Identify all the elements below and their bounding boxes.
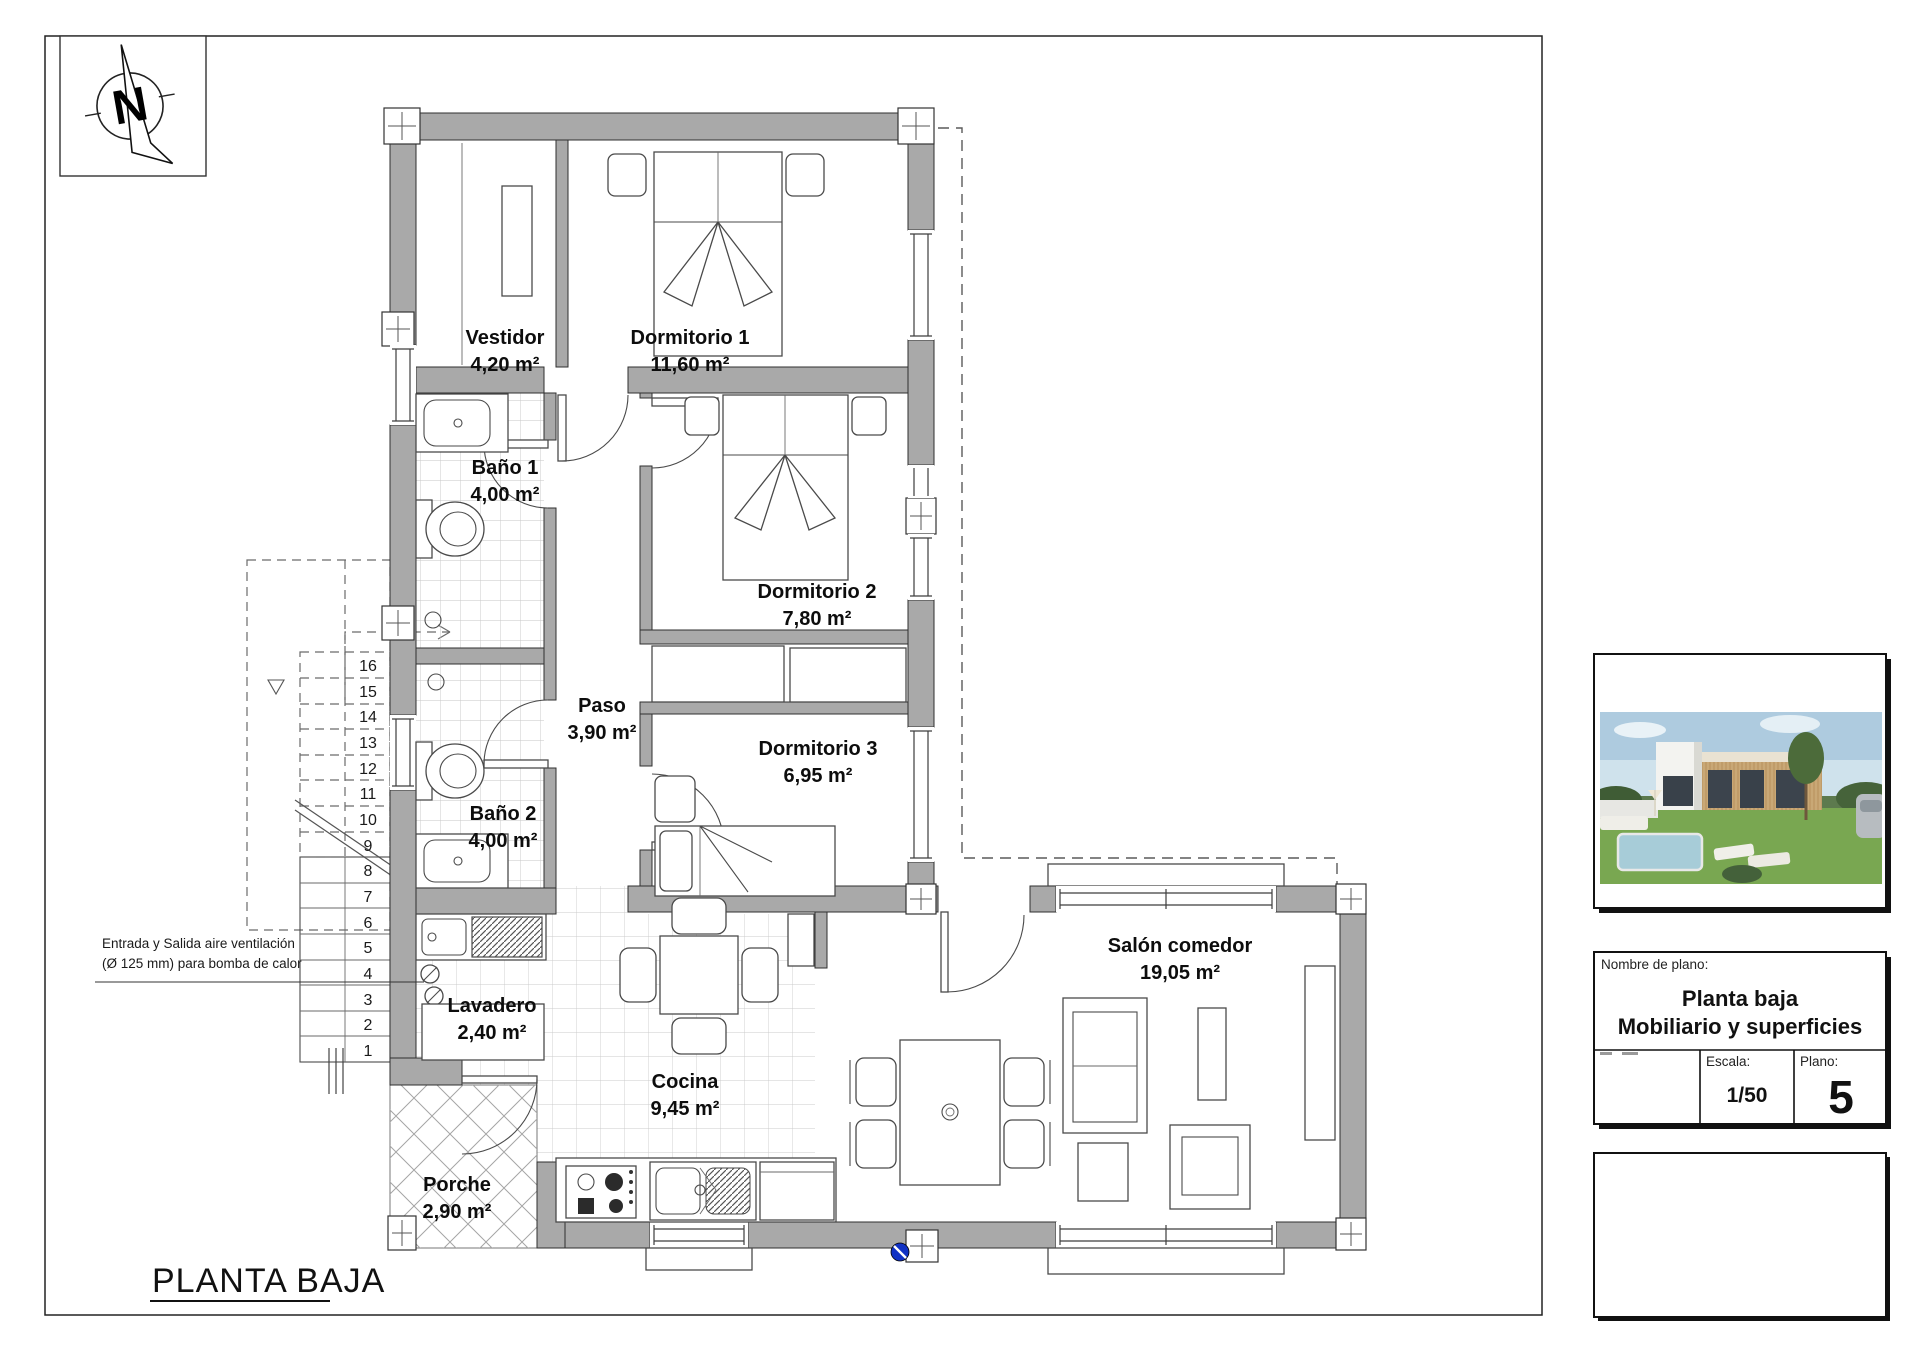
plan-title: PLANTA BAJA <box>152 1262 385 1300</box>
kitchen-counter <box>556 1158 836 1222</box>
window-dorm1 <box>908 230 934 340</box>
annotation-line1: Entrada y Salida aire ventilación <box>102 936 295 951</box>
stair-number: 16 <box>359 658 377 675</box>
title-block-title-line1: Planta baja <box>1682 986 1799 1011</box>
room-label-paso: Paso <box>578 695 626 717</box>
vent-icon <box>425 987 443 1005</box>
bed-dorm3 <box>655 776 835 896</box>
drawing-sheet: N <box>0 0 1920 1357</box>
stair-number: 8 <box>364 863 373 880</box>
window-kitchen <box>646 1222 752 1270</box>
stove-icon <box>566 1166 636 1218</box>
vent-icon <box>421 965 439 983</box>
room-area-paso: 3,90 m² <box>568 722 637 744</box>
sideboard <box>1305 966 1335 1140</box>
room-area-bano1: 4,00 m² <box>471 484 540 506</box>
room-area-porche: 2,90 m² <box>423 1201 492 1223</box>
window-bath2 <box>390 715 416 790</box>
stair-number: 4 <box>364 966 373 983</box>
stair-number: 14 <box>359 709 377 726</box>
room-label-dormitorio2: Dormitorio 2 <box>758 581 877 603</box>
room-area-bano2: 4,00 m² <box>469 830 538 852</box>
room-area-dormitorio1: 11,60 m² <box>651 354 730 376</box>
room-label-dormitorio3: Dormitorio 3 <box>759 738 878 760</box>
title-block-plan-number: 5 <box>1828 1071 1854 1123</box>
dishwasher <box>760 1162 834 1220</box>
stair-number: 13 <box>359 735 377 752</box>
floor-plan-drawing: N <box>0 0 1920 1357</box>
window-salon-north <box>1048 864 1284 912</box>
clipped-text-mark <box>1600 1052 1612 1055</box>
room-area-dormitorio3: 6,95 m² <box>784 765 853 787</box>
room-label-bano2: Baño 2 <box>470 803 537 825</box>
door-corridor <box>558 395 628 461</box>
nightstand <box>786 154 824 196</box>
stair-number: 2 <box>364 1017 373 1034</box>
nightstand <box>608 154 646 196</box>
room-label-lavadero: Lavadero <box>448 995 537 1017</box>
stair-number: 12 <box>359 761 377 778</box>
stair-number: 1 <box>364 1043 373 1060</box>
house-render-photo <box>1590 712 1896 884</box>
armchair <box>1170 1125 1250 1209</box>
stair-number: 9 <box>364 838 373 855</box>
title-block-name-label: Nombre de plano: <box>1601 957 1708 972</box>
side-table <box>1198 1008 1226 1100</box>
title-block-plan-label: Plano: <box>1800 1054 1838 1069</box>
title-block: Nombre de plano: Planta baja Mobiliario … <box>1594 952 1891 1129</box>
dining-set <box>850 1040 1050 1185</box>
room-area-cocina: 9,45 m² <box>651 1098 720 1120</box>
window-salon-south <box>1048 1222 1284 1274</box>
stair-number: 5 <box>364 940 373 957</box>
nightstand <box>655 776 695 822</box>
washer-top-icon <box>472 917 542 957</box>
wardrobe <box>502 186 532 296</box>
closet <box>790 648 906 702</box>
stair-number: 11 <box>360 786 377 803</box>
bed-dorm1 <box>608 152 824 356</box>
room-area-dormitorio2: 7,80 m² <box>783 608 852 630</box>
annotation-line2: (Ø 125 mm) para bomba de calor <box>102 956 302 971</box>
drain-marker-icon <box>891 1243 909 1261</box>
room-label-bano1: Baño 1 <box>472 457 539 479</box>
north-arrow-icon: N <box>60 36 206 177</box>
window-bath1 <box>390 345 416 425</box>
plan-title-underline <box>150 1300 330 1302</box>
sofa <box>1063 998 1147 1133</box>
room-label-porche: Porche <box>423 1174 491 1196</box>
toilet-icon <box>416 742 484 800</box>
room-label-cocina: Cocina <box>652 1071 720 1093</box>
stair-number: 7 <box>364 889 373 906</box>
stair-direction-mark <box>268 680 284 694</box>
bed-dorm2 <box>685 395 886 580</box>
stair-handrail-ticks <box>329 1048 343 1094</box>
empty-panel <box>1594 1153 1890 1321</box>
render-panel <box>1590 654 1896 913</box>
door-salon <box>941 912 1024 992</box>
stair-number: 6 <box>364 915 373 932</box>
kitchen-sink-icon <box>650 1162 756 1220</box>
room-label-dormitorio1: Dormitorio 1 <box>631 327 750 349</box>
room-area-lavadero: 2,40 m² <box>458 1022 527 1044</box>
stair-number: 15 <box>359 684 377 701</box>
cabinet <box>788 914 814 966</box>
title-block-scale-value: 1/50 <box>1727 1084 1768 1107</box>
nightstand <box>852 397 886 435</box>
room-area-salon: 19,05 m² <box>1140 962 1220 984</box>
window-dorm3 <box>908 727 934 862</box>
title-block-title-line2: Mobiliario y superficies <box>1618 1014 1863 1039</box>
stair-number: 3 <box>364 992 373 1009</box>
sheet-title: PLANTA BAJA <box>150 1262 385 1302</box>
corridor-tiles <box>556 886 628 914</box>
room-label-salon: Salón comedor <box>1108 935 1253 957</box>
nightstand <box>685 397 719 435</box>
roof-overhang-outline <box>938 128 1337 884</box>
room-area-vestidor: 4,20 m² <box>471 354 540 376</box>
toilet-icon <box>416 500 484 558</box>
ventilation-annotation: Entrada y Salida aire ventilación (Ø 125… <box>95 936 424 982</box>
title-block-scale-label: Escala: <box>1706 1054 1750 1069</box>
stair-number: 10 <box>359 812 377 829</box>
coffee-table <box>1078 1143 1128 1201</box>
room-label-vestidor: Vestidor <box>466 327 545 349</box>
closet <box>652 646 784 702</box>
clipped-text-mark <box>1622 1052 1638 1055</box>
